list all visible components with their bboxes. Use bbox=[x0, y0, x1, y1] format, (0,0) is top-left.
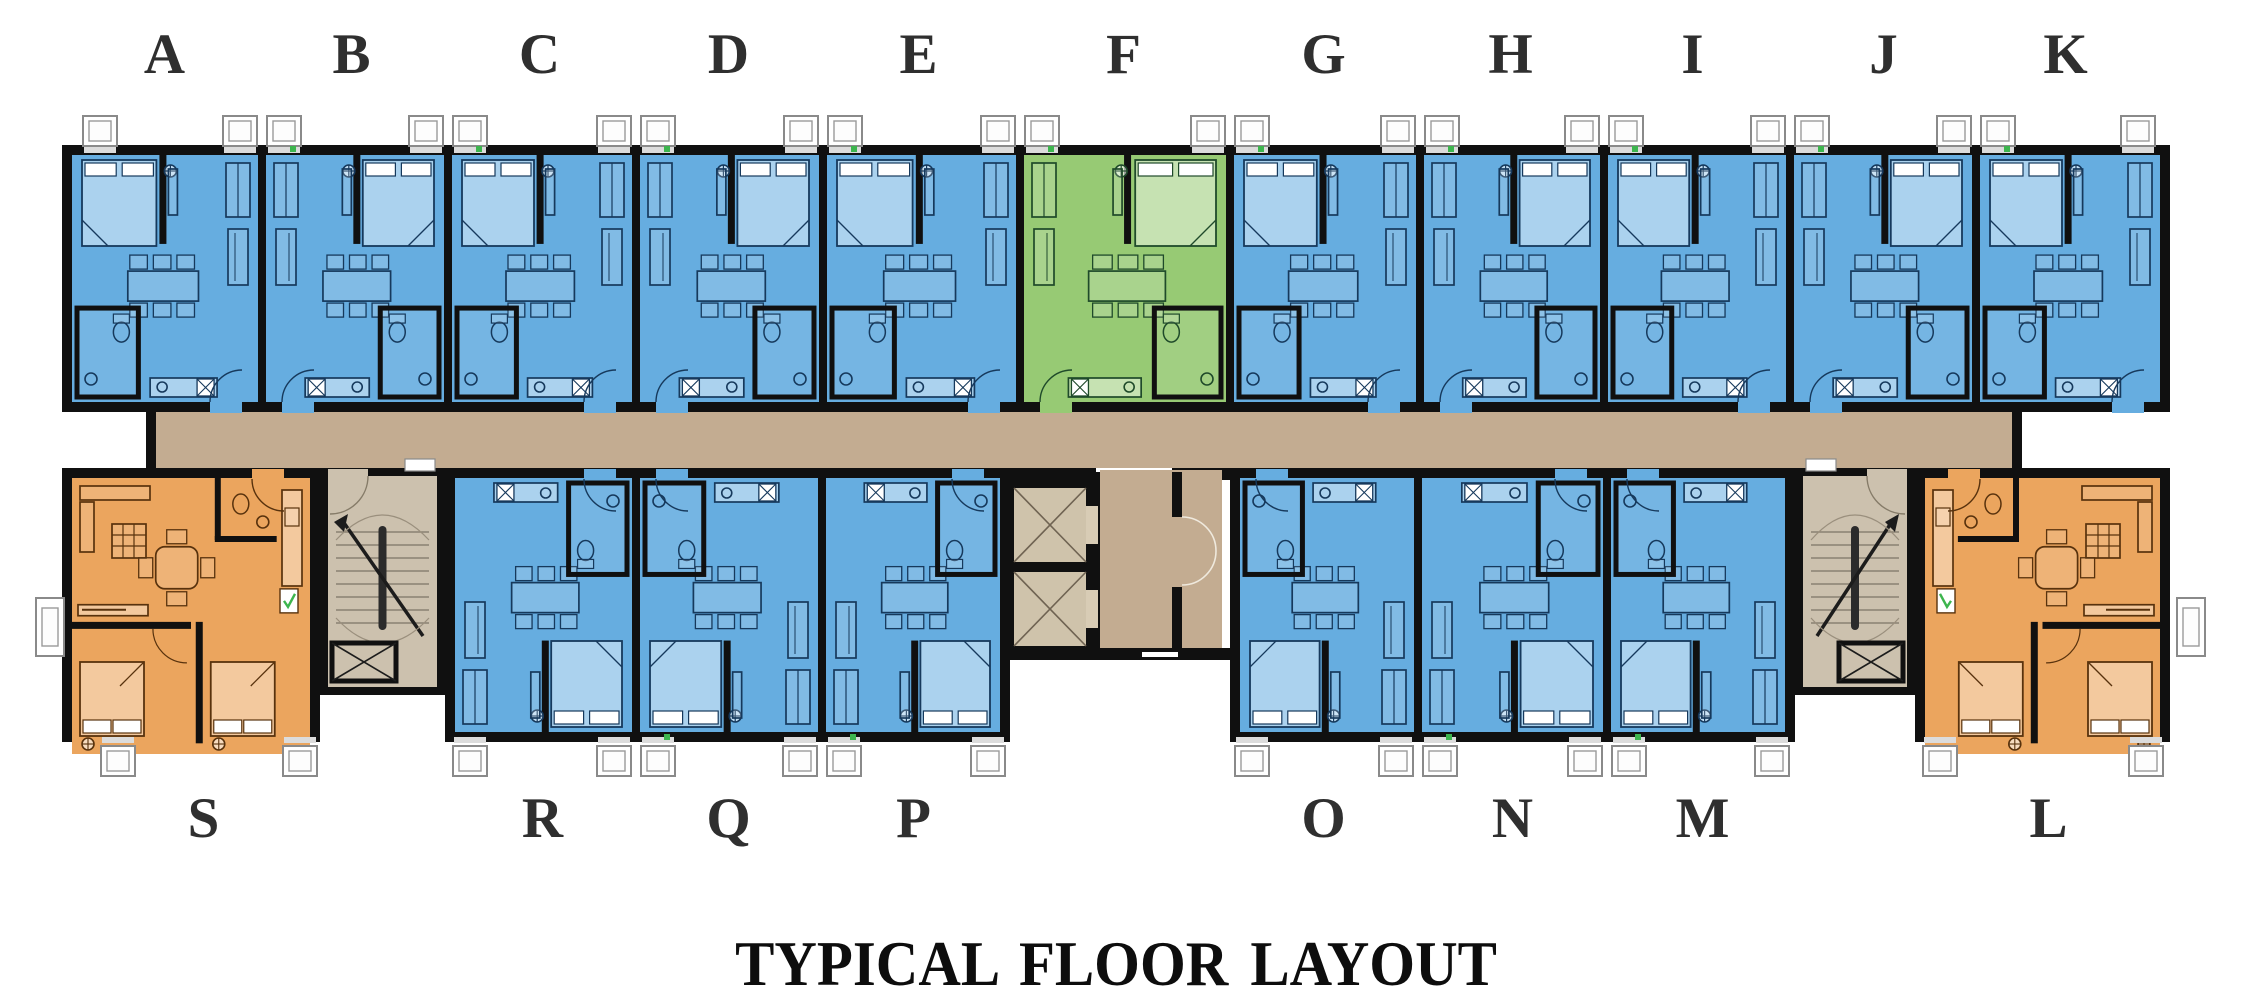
unit-label-C: C bbox=[519, 26, 561, 83]
plan-title: TYPICAL FLOOR LAYOUT bbox=[735, 932, 1497, 996]
unit-label-D: D bbox=[708, 26, 750, 83]
unit-label-K: K bbox=[2043, 26, 2088, 83]
unit-label-O: O bbox=[1301, 790, 1346, 847]
unit-label-N: N bbox=[1492, 790, 1534, 847]
unit-label-S: S bbox=[188, 790, 221, 847]
unit-label-L: L bbox=[2029, 790, 2068, 847]
unit-label-H: H bbox=[1488, 26, 1533, 83]
unit-label-E: E bbox=[899, 26, 938, 83]
unit-label-F: F bbox=[1106, 26, 1142, 83]
unit-label-Q: Q bbox=[706, 790, 751, 847]
unit-label-I: I bbox=[1681, 26, 1704, 83]
unit-label-M: M bbox=[1676, 790, 1731, 847]
unit-label-A: A bbox=[144, 26, 186, 83]
floor-plan-stage: ABCDEFGHIJK SRQPONML TYPICAL FLOOR LAYOU… bbox=[0, 0, 2241, 996]
unit-label-P: P bbox=[896, 790, 932, 847]
unit-label-R: R bbox=[522, 790, 564, 847]
unit-label-J: J bbox=[1869, 26, 1899, 83]
unit-label-G: G bbox=[1301, 26, 1346, 83]
floor-plan-canvas bbox=[0, 0, 2241, 996]
unit-label-B: B bbox=[332, 26, 371, 83]
